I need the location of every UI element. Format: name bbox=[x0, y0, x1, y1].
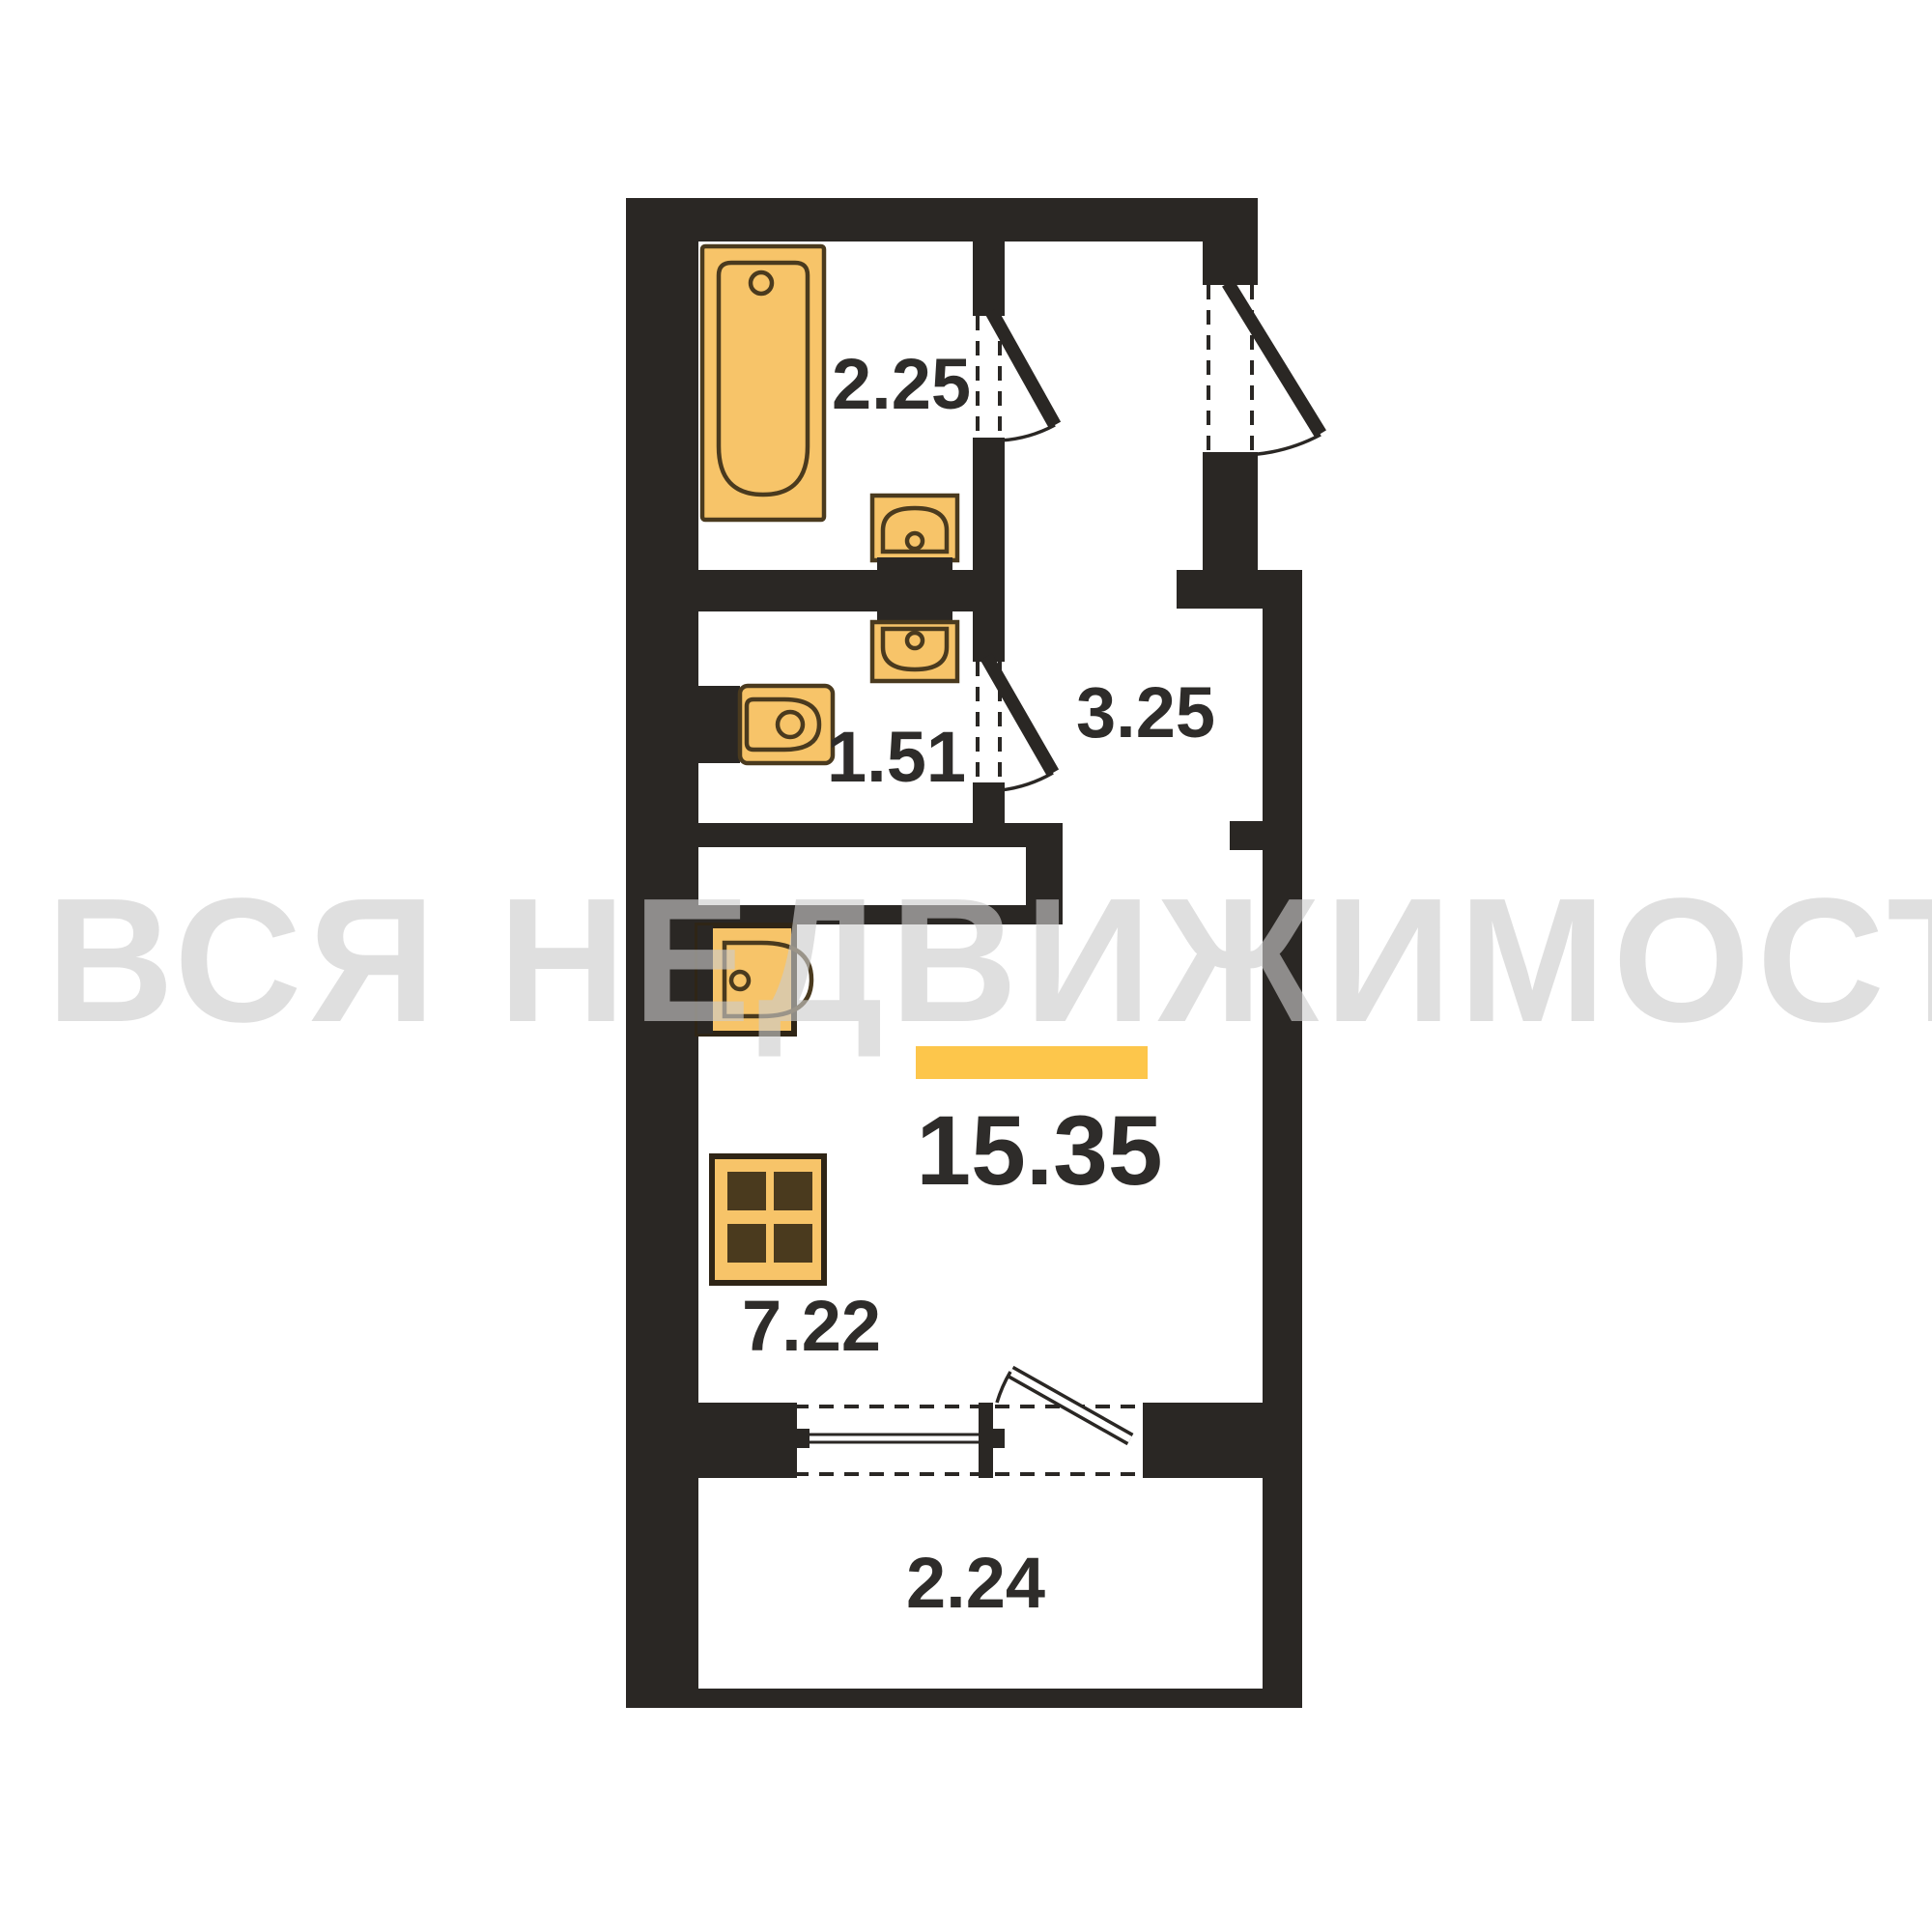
wall-right-upper bbox=[1203, 198, 1258, 285]
bathroom-door-swing bbox=[1001, 425, 1055, 440]
label-toilet-area: 1.51 bbox=[827, 717, 966, 797]
wall-pier bbox=[1230, 821, 1302, 850]
wall-niche-bottom bbox=[698, 905, 1063, 924]
wall-right-below-door bbox=[1203, 452, 1258, 570]
wall-niche-top bbox=[698, 823, 1063, 847]
wall-right-lower bbox=[1263, 850, 1302, 1708]
wall-balcony-stub-left bbox=[698, 1403, 782, 1478]
wc-sink-icon bbox=[872, 609, 957, 681]
label-balcony-area: 2.24 bbox=[906, 1543, 1045, 1623]
label-hallway-area: 3.25 bbox=[1076, 672, 1215, 753]
toilet-icon bbox=[697, 686, 833, 763]
balcony-window bbox=[810, 1435, 979, 1442]
wall-bathroom-right-upper bbox=[973, 241, 1005, 316]
label-kitchen-area: 7.22 bbox=[742, 1286, 881, 1366]
window-frame-left bbox=[782, 1403, 797, 1478]
window-frame-right bbox=[979, 1403, 993, 1478]
wc-door-leaf bbox=[986, 657, 1053, 773]
wc-door-swing bbox=[1001, 773, 1053, 790]
label-living-room-area: 15.35 bbox=[916, 1095, 1162, 1206]
stove-icon bbox=[712, 1156, 824, 1283]
wall-niche-cap bbox=[1026, 847, 1063, 905]
balcony-door-handle bbox=[993, 1429, 1005, 1448]
bathroom-sink-icon bbox=[872, 496, 957, 573]
wall-balcony-stub-right bbox=[1143, 1403, 1263, 1478]
wardrobe-highlight-bar bbox=[916, 1046, 1148, 1079]
wall-bath-wc-divider bbox=[698, 570, 1005, 611]
label-bathroom-area: 2.25 bbox=[832, 344, 971, 424]
entrance-door-swing bbox=[1220, 435, 1321, 455]
wall-balcony-bottom bbox=[626, 1689, 1302, 1708]
bathtub-icon bbox=[702, 246, 824, 520]
balcony-door-swing bbox=[997, 1372, 1010, 1403]
floor-plan-page: 2.25 1.51 3.25 15.35 7.22 2.24 ВСЯ НЕДВИ… bbox=[0, 0, 1932, 1932]
window-handle-left bbox=[797, 1429, 810, 1448]
wall-left bbox=[626, 198, 698, 1708]
wall-top bbox=[626, 198, 1258, 241]
wall-wc-right-upper bbox=[973, 611, 1005, 662]
wall-right-hall bbox=[1263, 609, 1302, 821]
kitchen-sink-icon bbox=[697, 925, 811, 1034]
entrance-door-leaf bbox=[1228, 283, 1321, 434]
wall-right-ledge bbox=[1177, 570, 1302, 609]
floor-plan: 2.25 1.51 3.25 15.35 7.22 2.24 bbox=[0, 0, 1932, 1932]
